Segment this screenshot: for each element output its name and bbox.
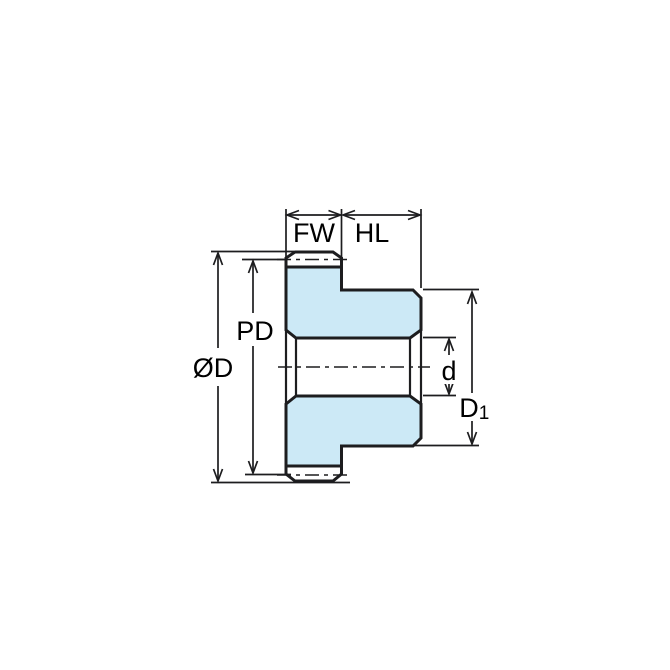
gear-body-upper-section bbox=[286, 267, 421, 338]
outside-diameter-label: ØD bbox=[193, 353, 234, 383]
bottom-tooth-profile bbox=[286, 466, 342, 481]
gear-dimension-diagram: FW HL ØD PD bbox=[0, 0, 670, 670]
gear-body-lower-section bbox=[286, 396, 421, 466]
hub-diameter-label: D bbox=[459, 393, 479, 423]
face-width-label: FW bbox=[293, 218, 335, 248]
hub-length-label: HL bbox=[355, 218, 390, 248]
diagram-canvas: FW HL ØD PD bbox=[0, 0, 670, 670]
bore-diameter-label: d bbox=[441, 356, 456, 386]
hub-diameter-subscript: 1 bbox=[479, 403, 490, 424]
pitch-diameter-label: PD bbox=[236, 316, 274, 346]
